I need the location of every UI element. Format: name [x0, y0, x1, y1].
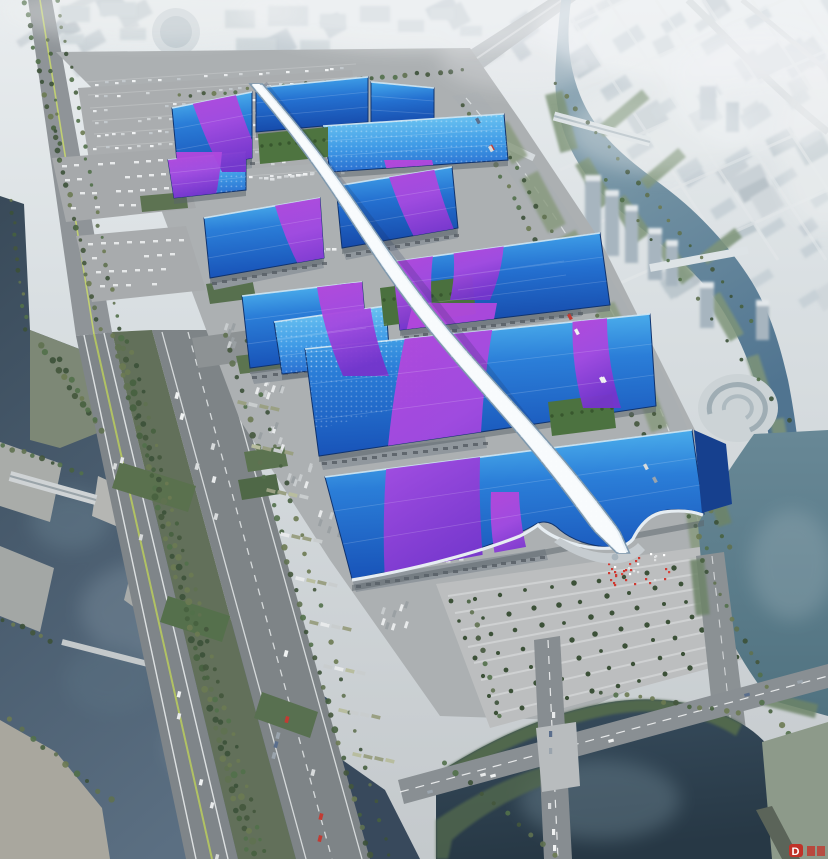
svg-text:D: D — [792, 846, 800, 858]
